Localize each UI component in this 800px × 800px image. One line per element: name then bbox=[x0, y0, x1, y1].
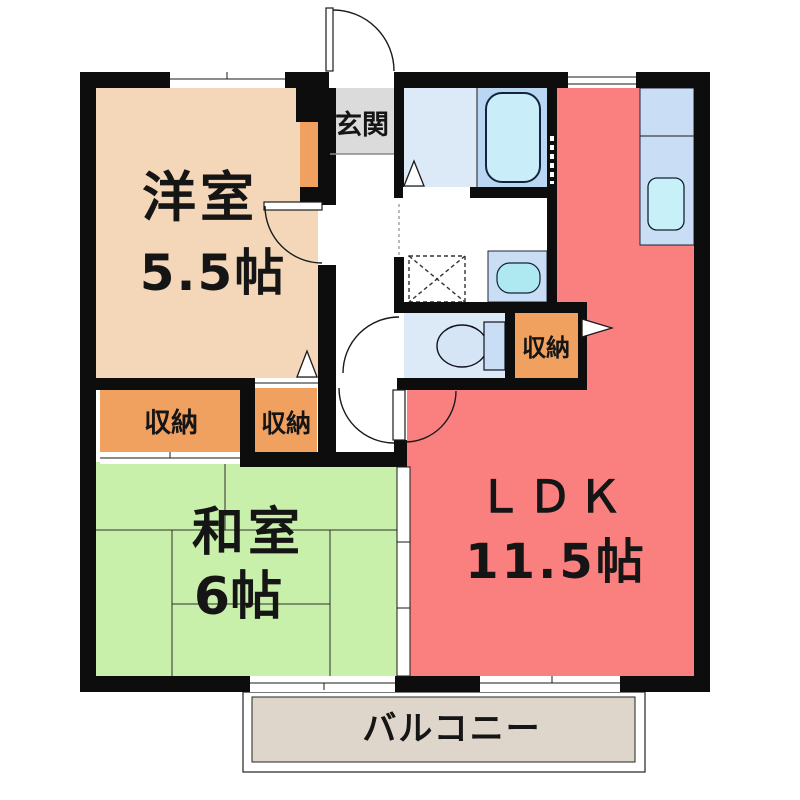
bathtub-icon bbox=[486, 93, 540, 182]
kitchen-sink-icon bbox=[648, 178, 684, 230]
bathroom-door-opening bbox=[404, 187, 470, 198]
floorplan-canvas: 洋室 5.5帖 玄関 収納 収納 収納 和室 6帖 ＬＤＫ 11.5帖 バルコニ… bbox=[0, 0, 800, 800]
entrance-label: 玄関 bbox=[335, 109, 389, 141]
ldk-north-window bbox=[568, 72, 636, 88]
japanese-room-label: 和室 bbox=[192, 503, 304, 563]
toilet-tank-icon bbox=[484, 322, 505, 370]
toilet-door-opening bbox=[394, 315, 404, 373]
entrance-shoe-cabinet bbox=[300, 122, 318, 187]
entrance-door-arc bbox=[333, 10, 394, 71]
ldk-balcony-window bbox=[480, 676, 620, 692]
japanese-room-size: 6帖 bbox=[194, 567, 282, 627]
entrance-door-leaf bbox=[326, 8, 333, 71]
washbasin-sink-icon bbox=[497, 263, 540, 293]
entrance-door-opening bbox=[329, 72, 394, 88]
western-room-label: 洋室 bbox=[142, 166, 258, 229]
balcony-label: バルコニー bbox=[362, 709, 541, 749]
western-room-door-opening bbox=[318, 205, 336, 265]
fusuma-sliding-door bbox=[397, 467, 410, 676]
storage3-label: 収納 bbox=[522, 334, 570, 362]
western-room-size: 5.5帖 bbox=[140, 244, 287, 302]
toilet-door-arc bbox=[343, 317, 399, 373]
ldk-door-leaf bbox=[393, 390, 405, 440]
western-room-door-leaf bbox=[264, 202, 322, 210]
storage1-label: 収納 bbox=[144, 407, 198, 439]
toilet-bowl-icon bbox=[437, 325, 487, 367]
japanese-room-balcony-window bbox=[250, 676, 395, 692]
western-room-floor bbox=[96, 88, 318, 378]
ldk-label: ＬＤＫ bbox=[478, 472, 628, 523]
ldk-floor-south bbox=[407, 390, 557, 676]
hall-door-arc bbox=[339, 388, 394, 443]
laundry-pan-icon bbox=[409, 256, 465, 302]
storage2-label: 収納 bbox=[261, 409, 311, 438]
ldk-size: 11.5帖 bbox=[465, 534, 646, 590]
floorplan-page: 洋室 5.5帖 玄関 収納 収納 収納 和室 6帖 ＬＤＫ 11.5帖 バルコニ… bbox=[0, 0, 800, 800]
